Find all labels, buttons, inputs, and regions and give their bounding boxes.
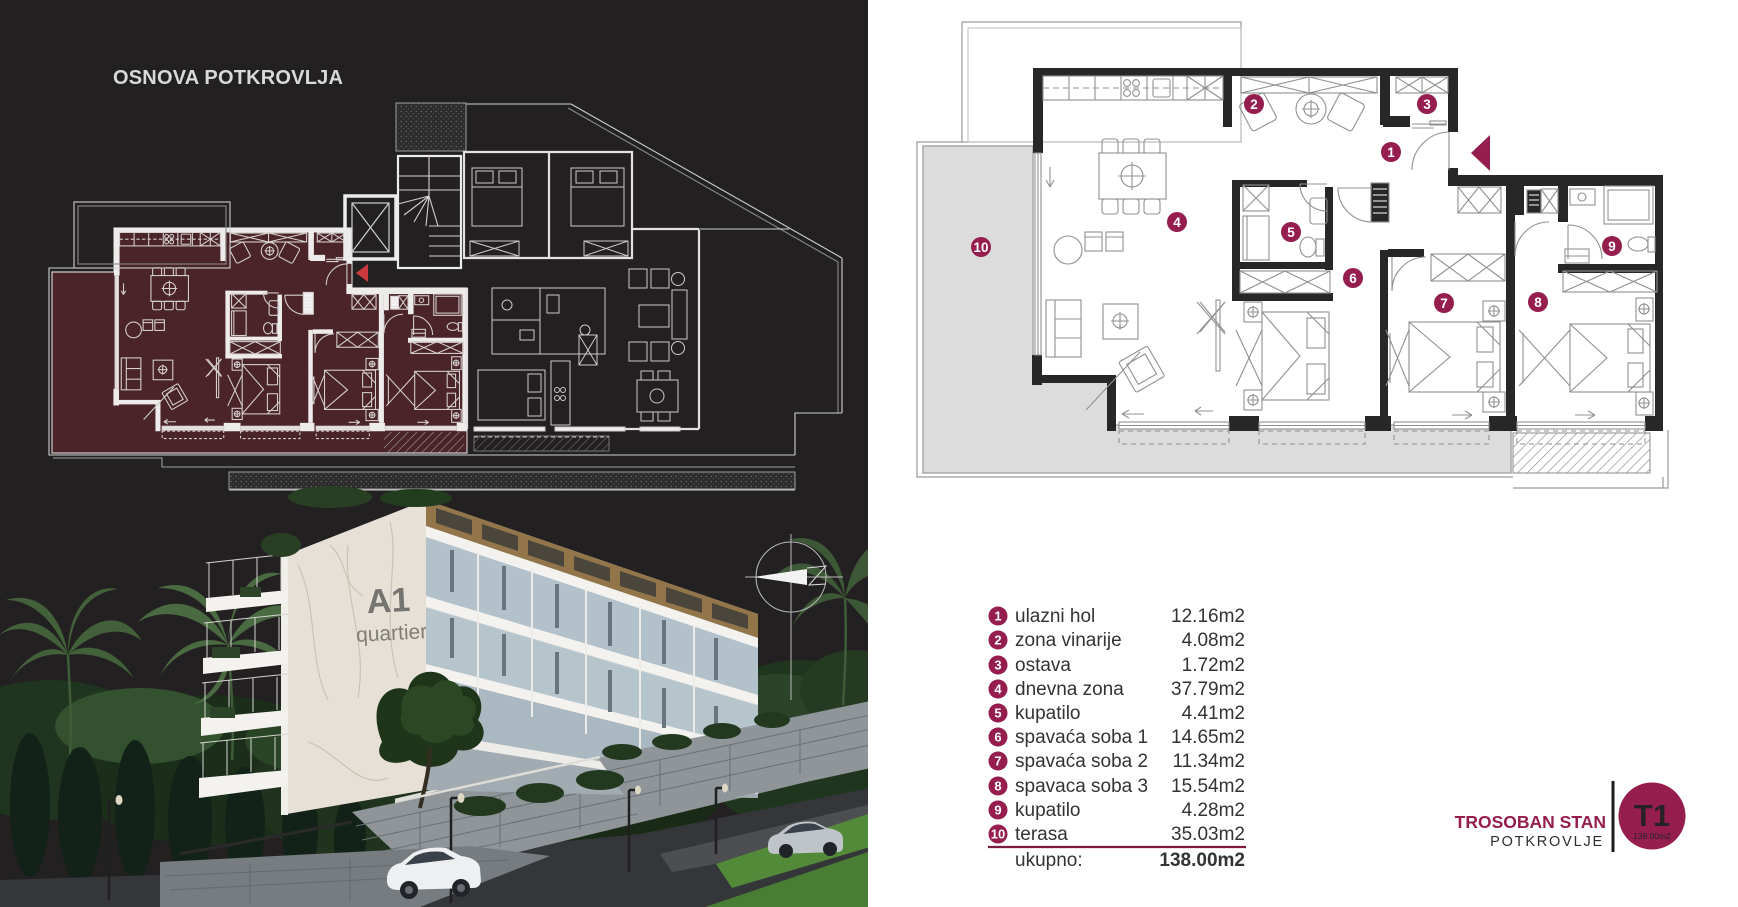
svg-text:1: 1 [1387, 145, 1395, 160]
svg-text:2: 2 [994, 633, 1001, 648]
svg-text:1: 1 [994, 609, 1001, 624]
svg-text:3: 3 [994, 658, 1001, 673]
svg-text:9: 9 [1608, 239, 1616, 254]
svg-text:ostava: ostava [1015, 655, 1071, 676]
svg-text:zona vinarije: zona vinarije [1015, 630, 1122, 651]
svg-text:9: 9 [994, 803, 1001, 818]
svg-text:TROSOBAN STAN: TROSOBAN STAN [1455, 812, 1606, 832]
svg-text:T1: T1 [1634, 798, 1670, 833]
svg-text:spavaća soba 2: spavaća soba 2 [1015, 751, 1148, 772]
svg-text:5: 5 [1287, 225, 1295, 240]
svg-text:4.08m2: 4.08m2 [1182, 630, 1245, 651]
svg-text:kupatilo: kupatilo [1015, 800, 1081, 821]
svg-text:8: 8 [1534, 295, 1542, 310]
svg-text:10: 10 [973, 240, 988, 255]
svg-text:ulazni hol: ulazni hol [1015, 606, 1095, 627]
svg-text:4: 4 [994, 682, 1002, 697]
svg-text:7: 7 [1440, 296, 1448, 311]
svg-text:138.00m2: 138.00m2 [1159, 850, 1245, 871]
svg-text:4: 4 [1173, 215, 1181, 230]
svg-text:4.28m2: 4.28m2 [1182, 800, 1245, 821]
svg-text:11.34m2: 11.34m2 [1172, 751, 1245, 772]
svg-text:6: 6 [1349, 271, 1357, 286]
svg-text:14.65m2: 14.65m2 [1171, 727, 1245, 748]
svg-text:35.03m2: 35.03m2 [1171, 824, 1245, 845]
svg-text:ukupno:: ukupno: [1015, 850, 1083, 871]
svg-text:10: 10 [991, 827, 1005, 842]
svg-text:OSNOVA POTKROVLJA: OSNOVA POTKROVLJA [113, 67, 343, 89]
svg-text:7: 7 [994, 754, 1001, 769]
svg-text:1.72m2: 1.72m2 [1182, 655, 1245, 676]
svg-text:6: 6 [994, 730, 1001, 745]
svg-text:dnevna zona: dnevna zona [1015, 679, 1124, 700]
svg-text:POTKROVLJE: POTKROVLJE [1490, 834, 1604, 850]
svg-text:quartier: quartier [356, 620, 428, 647]
svg-text:138.00m2: 138.00m2 [1633, 831, 1671, 841]
svg-text:terasa: terasa [1015, 824, 1068, 845]
svg-text:12.16m2: 12.16m2 [1171, 606, 1245, 627]
svg-text:spavaća soba 1: spavaća soba 1 [1015, 727, 1148, 748]
svg-text:2: 2 [1250, 97, 1258, 112]
svg-text:kupatilo: kupatilo [1015, 703, 1081, 724]
svg-text:37.79m2: 37.79m2 [1171, 679, 1245, 700]
svg-text:5: 5 [994, 706, 1001, 721]
svg-text:4.41m2: 4.41m2 [1182, 703, 1245, 724]
svg-text:15.54m2: 15.54m2 [1171, 776, 1245, 797]
svg-text:A1: A1 [366, 581, 411, 621]
svg-text:3: 3 [1423, 97, 1431, 112]
svg-text:8: 8 [994, 779, 1001, 794]
svg-text:spavaca soba 3: spavaca soba 3 [1015, 776, 1148, 797]
